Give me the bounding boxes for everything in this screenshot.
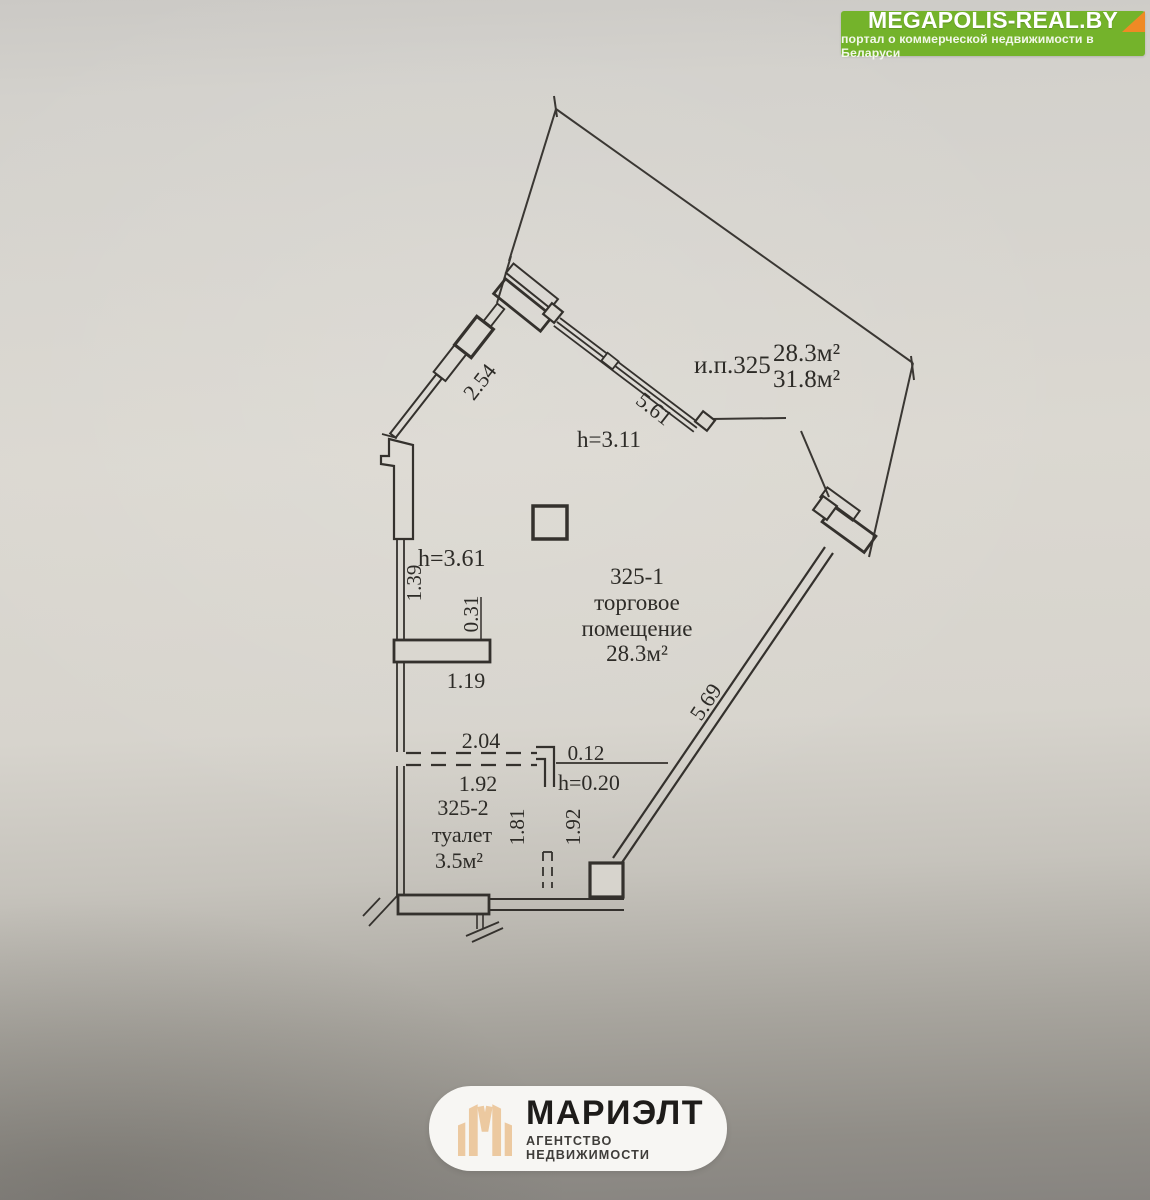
bottom-wall xyxy=(363,863,624,942)
agency-logo-pill: МАРИЭЛТ АГЕНТСТВО НЕДВИЖИМОСТИ xyxy=(429,1086,727,1171)
dim-wall-top-left: 2.54 xyxy=(458,359,501,405)
unit-area-alt: 31.8м² xyxy=(773,366,840,393)
dim-sill-height: h=0.20 xyxy=(558,770,620,795)
room-wc-area: 3.5м² xyxy=(435,848,483,873)
wall-segment xyxy=(390,374,442,437)
m-vee xyxy=(481,1106,490,1131)
room-main-name2: помещение xyxy=(582,616,693,641)
partition-corner-inner xyxy=(536,759,545,787)
megapolis-fold-corner-icon xyxy=(1122,11,1145,32)
wall-chain-top-left xyxy=(390,263,563,437)
opening-edge-line xyxy=(711,418,786,419)
window-wall xyxy=(554,318,715,432)
m-bar xyxy=(505,1122,512,1156)
hatch-mark xyxy=(369,896,397,926)
floor-plan-drawing: и.п.325 28.3м² 31.8м² h=3.11 h=3.61 2.54… xyxy=(0,0,1150,1200)
megapolis-title: MEGAPOLIS-REAL.BY xyxy=(868,8,1118,32)
window-line xyxy=(560,318,700,424)
room-wc-number: 325-2 xyxy=(437,795,488,820)
hatch-mark xyxy=(363,898,380,916)
dim-wc-depth: 1.81 xyxy=(505,809,529,846)
unit-area: 28.3м² xyxy=(773,340,840,367)
unit-label: и.п.325 xyxy=(694,352,771,379)
height-main: h=3.11 xyxy=(577,427,641,452)
column-bottom-right xyxy=(590,863,623,897)
dim-left-upper: 1.39 xyxy=(402,565,426,602)
boundary-left xyxy=(509,109,556,261)
agency-tagline: АГЕНТСТВО НЕДВИЖИМОСТИ xyxy=(526,1134,727,1162)
window-end-cap xyxy=(695,411,715,430)
dim-wc-width: 1.92 xyxy=(561,809,585,846)
dim-partition-top: 2.04 xyxy=(462,728,501,753)
dim-window: 5.61 xyxy=(631,387,677,430)
window-end-cap xyxy=(813,496,837,520)
room-wc-name: туалет xyxy=(432,822,493,847)
boundary-right xyxy=(869,363,913,557)
height-left: h=3.61 xyxy=(418,546,486,572)
wall-thick-rect xyxy=(398,895,489,914)
dim-stub-length: 1.19 xyxy=(447,668,486,693)
room-main-name1: торговое xyxy=(594,590,680,615)
dim-opening: 0.12 xyxy=(568,741,605,765)
column-block xyxy=(455,316,494,357)
boundary-lines xyxy=(497,96,914,557)
m-bar xyxy=(469,1104,478,1156)
floor-plan-photo: и.п.325 28.3м² 31.8м² h=3.11 h=3.61 2.54… xyxy=(0,0,1150,1200)
dim-stub-thickness: 0.31 xyxy=(459,596,483,633)
agency-m-logo-icon xyxy=(456,1102,514,1156)
dim-partition-bottom: 1.92 xyxy=(459,771,498,796)
inner-diagonal-line xyxy=(801,431,829,497)
megapolis-subtitle: портал о коммерческой недвижимости в Бел… xyxy=(841,32,1145,60)
column-center xyxy=(533,506,567,539)
megapolis-watermark: MEGAPOLIS-REAL.BY портал о коммерческой … xyxy=(841,11,1145,56)
hatch-mark xyxy=(472,928,503,942)
room-main-number: 325-1 xyxy=(610,564,664,589)
right-wall xyxy=(613,487,876,864)
m-bar xyxy=(458,1122,465,1156)
agency-name: МАРИЭЛТ xyxy=(526,1096,727,1130)
room-main-area: 28.3м² xyxy=(606,641,668,666)
wall-stem xyxy=(484,304,505,327)
m-bar xyxy=(492,1104,501,1156)
left-pier xyxy=(381,439,413,539)
wall-stub-119 xyxy=(394,640,490,662)
boundary-top xyxy=(556,109,913,363)
